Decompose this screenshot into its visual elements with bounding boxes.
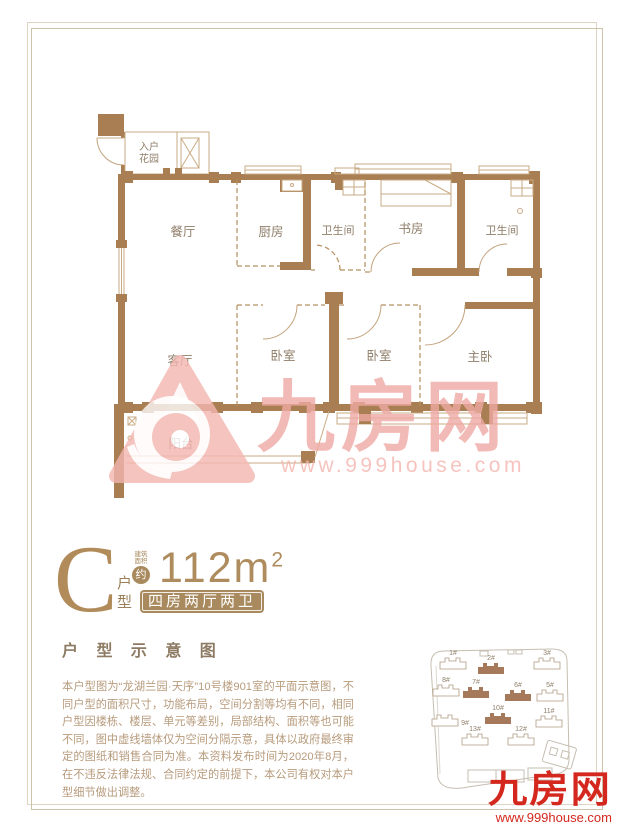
svg-text:3#: 3# [543,650,551,657]
unit-letter: C [54,536,117,622]
building-7: 7# [463,679,489,698]
label-entry-garden-2: 花园 [139,152,159,165]
footer-logo: 九房网 www.999house.com [495,770,612,825]
label-kitchen: 厨房 [258,224,283,239]
svg-text:5#: 5# [546,682,554,689]
svg-text:2#: 2# [487,655,495,662]
svg-text:1#: 1# [449,650,457,657]
area-number: 112m [159,544,271,592]
svg-text:12#: 12# [515,726,527,733]
area-note: 建筑面积 [133,551,149,565]
building-11: 11# [536,708,562,727]
svg-text:13#: 13# [469,726,481,733]
area-superscript: 2 [271,549,285,572]
svg-text:11#: 11# [543,708,554,715]
svg-text:10#: 10# [492,705,504,712]
area-note-line1: 建筑 [135,551,148,558]
label-study: 书房 [398,221,423,236]
label-bath2: 卫生间 [486,223,519,237]
entry-garden [125,132,209,175]
watermark-logo-icon [116,362,248,479]
svg-text:6#: 6# [514,682,522,689]
bath1-walls [311,178,365,270]
area-note-line2: 面积 [135,558,148,565]
section-title: 户 型 示 意 图 [62,637,223,661]
unit-layout-tag: 四房两厅两卫 [140,590,264,613]
label-entry-garden-1: 入户 [139,140,159,153]
building-10: 10# [485,705,511,724]
top-wall [121,164,540,184]
building-2: 2# [478,655,504,674]
unit-type-label: 户型 [113,575,134,613]
svg-text:9#: 9# [461,720,469,727]
label-dining: 餐厅 [170,224,195,239]
entrance-door [97,114,125,176]
footer-brand-text: 九房网 [488,770,612,810]
watermark-url: www.999house.com [280,454,525,477]
watermark-brand: 九房网 [257,373,509,461]
site-entrance-building [542,740,577,769]
building-12: 12# [508,726,534,745]
svg-text:8#: 8# [442,677,450,684]
building-5: 5# [537,682,563,701]
watermark: 九房网 www.999house.com [100,348,540,488]
area-approx-badge: 约 [132,566,150,584]
building-3: 3# [534,650,560,669]
building-13: 13# [462,726,488,745]
svg-text:7#: 7# [472,679,480,686]
kitchen-walls [237,178,311,270]
disclaimer-text: 本户型图为“龙湖兰园·天序”10号楼901室的平面示意图，不同户型的面积尺寸，功… [62,679,354,802]
building-1: 1# [440,650,466,669]
label-bath1: 卫生间 [322,223,355,237]
footer-url-text: www.999house.com [495,810,612,825]
unit-area: 112m2 [159,544,285,593]
building-6: 6# [505,682,531,701]
floorplan-page: { "unit": { "letter": "C", "type_label":… [0,0,625,833]
building-9: 9# [432,715,469,727]
